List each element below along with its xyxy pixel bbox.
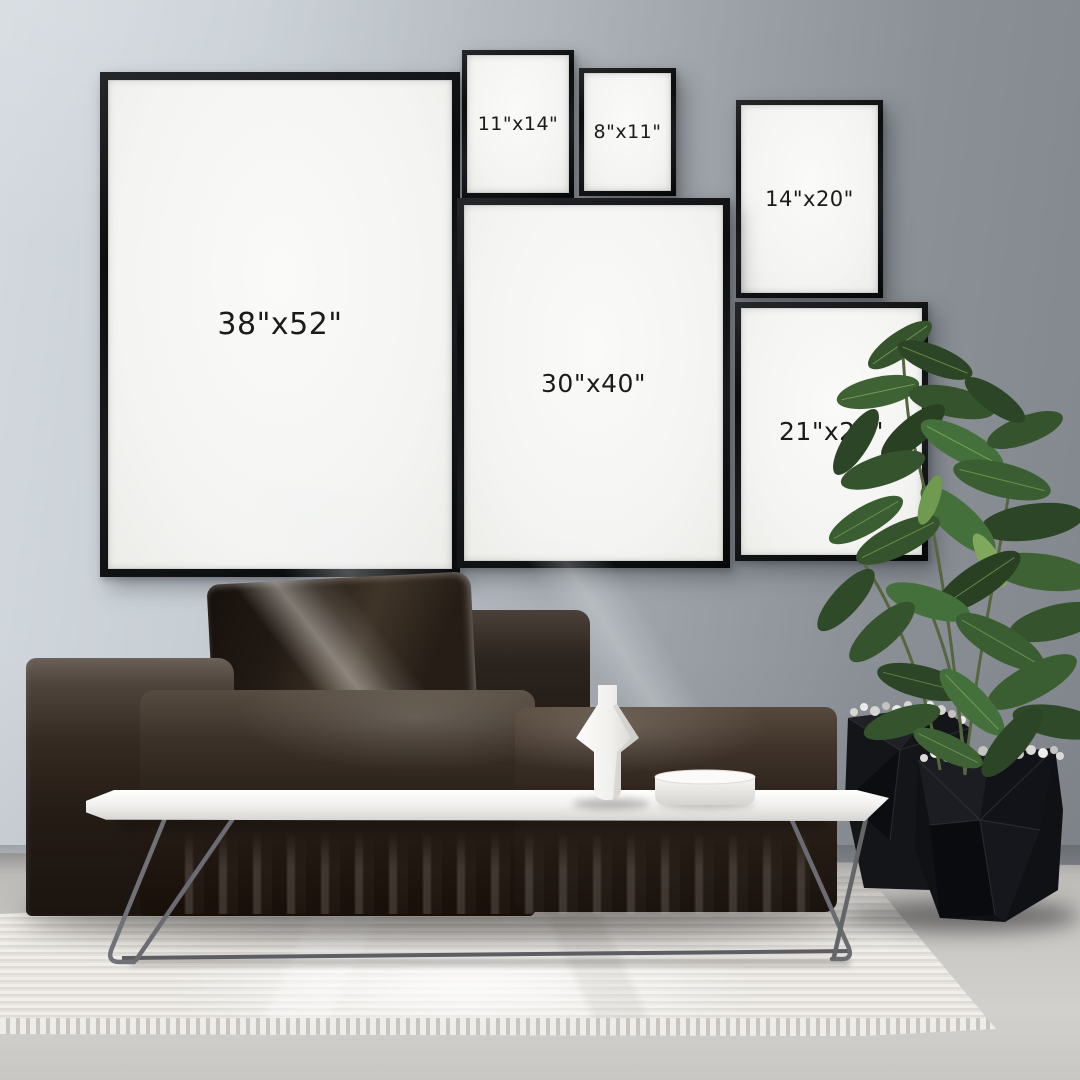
frame-8x11: 8"x11" xyxy=(579,68,676,196)
frame-size-label: 14"x20" xyxy=(765,187,854,211)
table-legs xyxy=(60,800,920,1060)
frame-matte: 8"x11" xyxy=(584,73,671,191)
frame-14x20: 14"x20" xyxy=(736,100,883,298)
frame-11x14: 11"x14" xyxy=(462,50,574,198)
white-bowl xyxy=(653,768,757,808)
frame-matte: 11"x14" xyxy=(467,55,569,193)
coffee-table-top xyxy=(86,790,889,821)
white-vase xyxy=(565,682,651,810)
frame-size-label: 11"x14" xyxy=(478,113,559,135)
frame-matte: 38"x52" xyxy=(108,80,452,569)
frame-size-label: 30"x40" xyxy=(541,369,646,398)
plant-leaves xyxy=(809,313,1080,786)
frame-size-label: 8"x11" xyxy=(594,121,662,143)
frame-38x52: 38"x52" xyxy=(100,72,460,577)
frame-30x40: 30"x40" xyxy=(457,198,730,568)
frame-matte: 14"x20" xyxy=(741,105,878,293)
frame-size-label: 38"x52" xyxy=(217,307,342,342)
frame-matte: 30"x40" xyxy=(464,205,723,561)
room-scene: 38"x52" 11"x14" 8"x11" 14"x20" 30"x40" 2… xyxy=(0,0,1080,1080)
ficus-plant xyxy=(790,280,1080,800)
